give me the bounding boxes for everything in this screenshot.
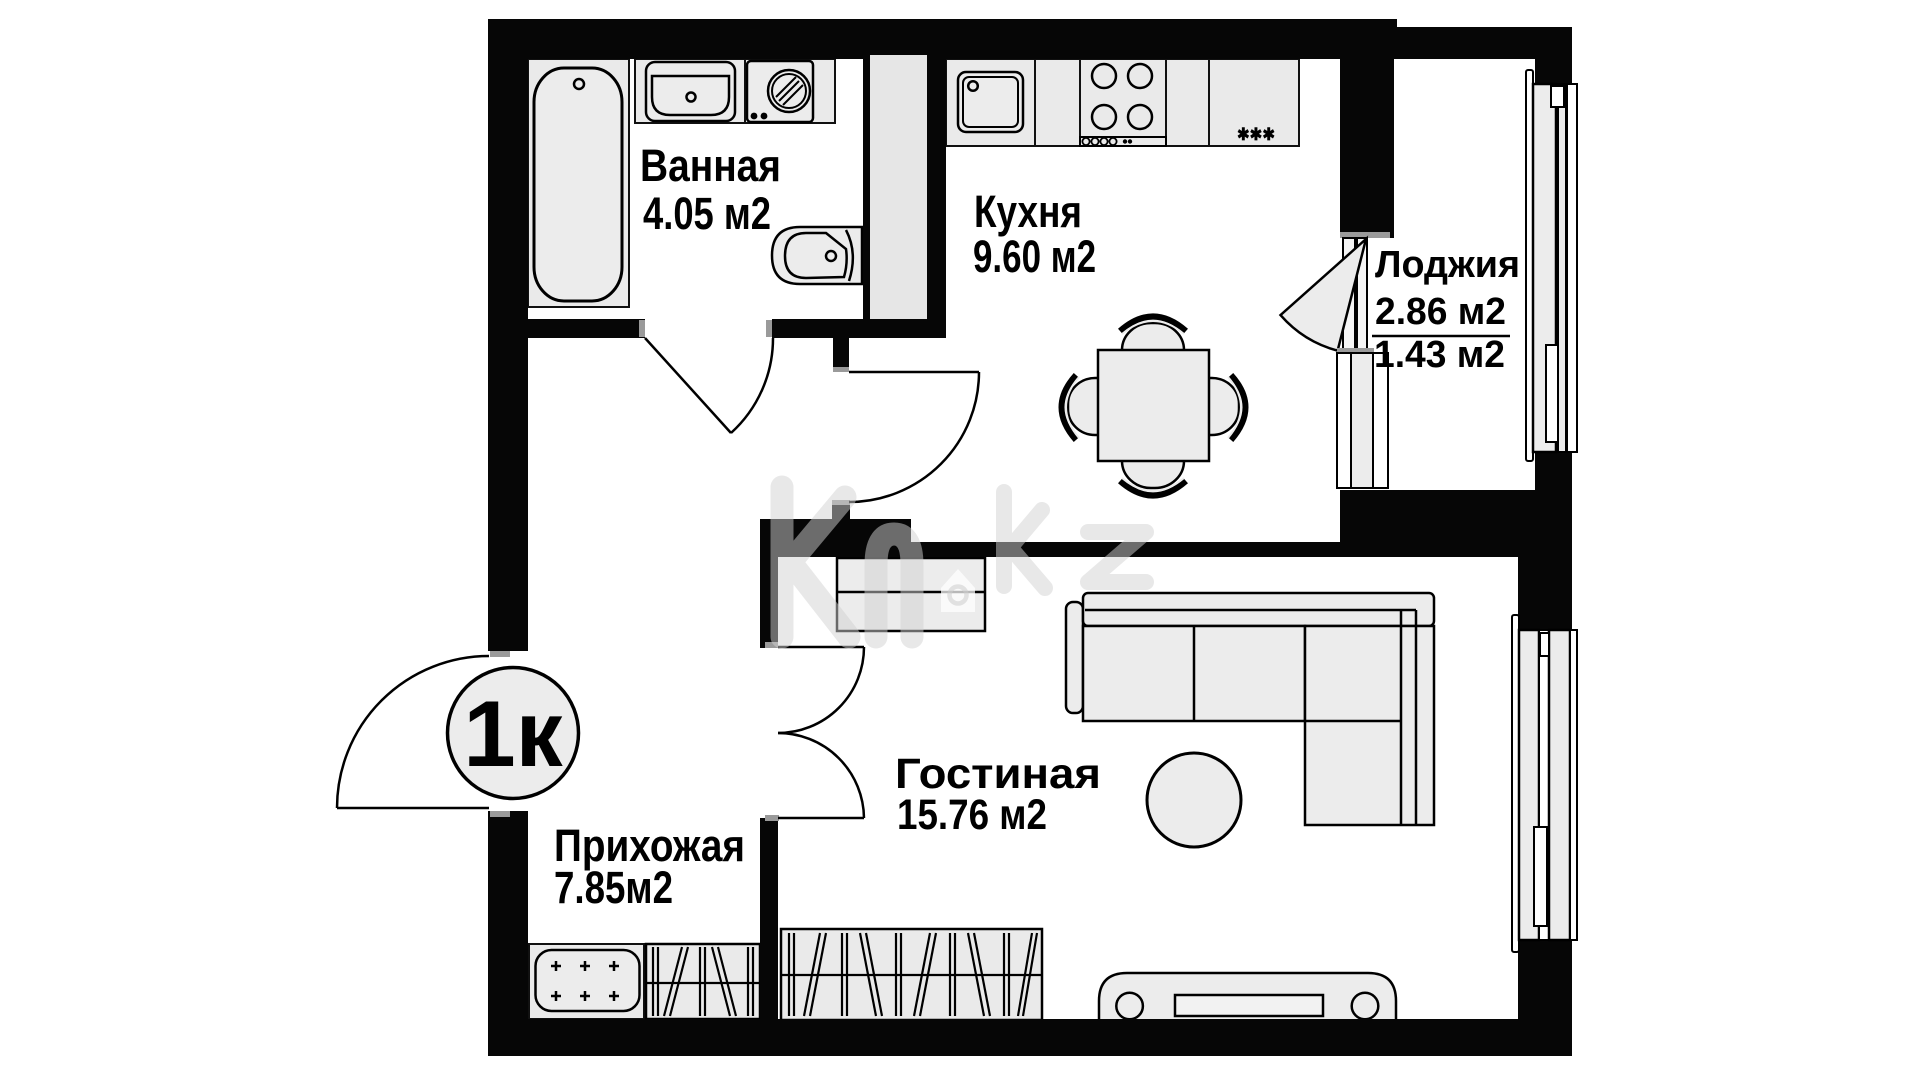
- svg-text:Лоджия: Лоджия: [1375, 244, 1520, 286]
- svg-text:4.05 м2: 4.05 м2: [643, 188, 771, 239]
- svg-text:2.86 м2: 2.86 м2: [1375, 291, 1506, 333]
- svg-text:15.76 м2: 15.76 м2: [897, 791, 1047, 839]
- svg-text:1.43 м2: 1.43 м2: [1374, 334, 1505, 376]
- svg-text:✱✱✱: ✱✱✱: [1237, 125, 1275, 144]
- svg-text:Ванная: Ванная: [640, 140, 781, 191]
- svg-text:7.85м2: 7.85м2: [554, 862, 673, 913]
- svg-text:1к: 1к: [463, 681, 563, 786]
- svg-text:9.60 м2: 9.60 м2: [973, 231, 1096, 282]
- svg-text:Кухня: Кухня: [974, 186, 1082, 237]
